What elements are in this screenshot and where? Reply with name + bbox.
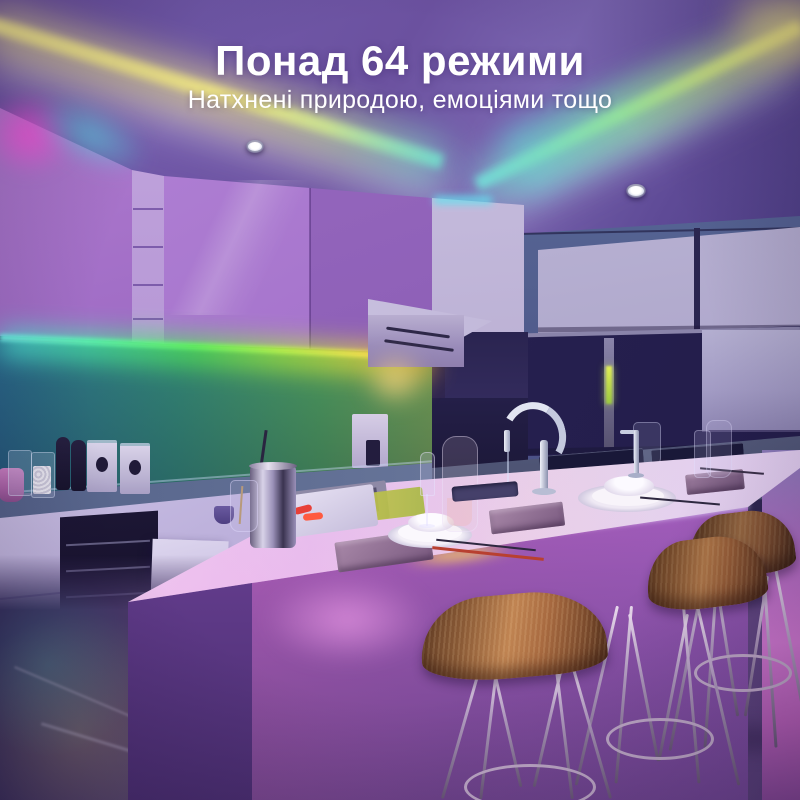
window-led-reflection (606, 366, 612, 404)
bar-stool-legs (604, 606, 714, 800)
headline: Понад 64 режими (0, 38, 800, 84)
glass-jar (8, 450, 32, 496)
stool-foot-ring (606, 718, 714, 760)
shelf-edge (133, 318, 163, 320)
glass-carafe (230, 480, 258, 532)
stool-foot-ring (464, 764, 596, 800)
shelf-edge (133, 284, 163, 286)
faucet-spout (504, 430, 510, 452)
cyan-edge-glow (434, 196, 492, 204)
roller-shade (702, 330, 800, 432)
carafe-liquid (447, 498, 472, 526)
kitchen-led-marketing-photo: Понад 64 режими Натхнені природою, емоці… (0, 0, 800, 800)
small-faucet-base (628, 473, 644, 478)
small-faucet (634, 430, 639, 476)
flute-foot (419, 524, 435, 528)
pepper-grinder (56, 437, 70, 490)
canister-label (129, 460, 141, 475)
pepper-grinder (71, 440, 86, 491)
cabinet-seam (309, 188, 311, 349)
recessed-ceiling-light (246, 140, 264, 153)
recessed-ceiling-light (626, 184, 646, 198)
cabinet-gap (694, 228, 700, 332)
faucet-pipe (540, 440, 548, 492)
bar-stool-legs (462, 662, 594, 800)
shelf-edge (133, 208, 163, 210)
shelf-edge (133, 246, 163, 248)
faucet-base (532, 488, 556, 495)
subtitle: Натхнені природою, емоціями тощо (0, 86, 800, 115)
jar-contents (33, 466, 51, 494)
island-glow-hotspot (262, 575, 432, 665)
cabinet-gloss-highlight (170, 180, 310, 315)
flute-stem (426, 494, 428, 526)
canister-label (96, 457, 108, 472)
warm-light-glow (362, 352, 428, 408)
bowl (604, 476, 654, 496)
dispenser-slot (366, 440, 380, 466)
bucket-rim (249, 462, 297, 470)
champagne-flute (420, 452, 435, 496)
glass-carafe (706, 420, 732, 478)
